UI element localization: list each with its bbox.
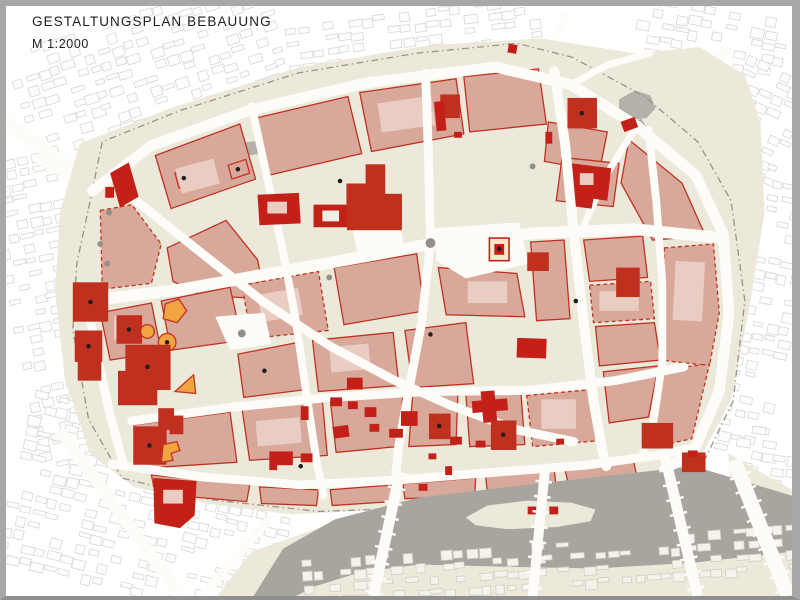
fabric-building (12, 183, 24, 192)
fabric-building (57, 568, 69, 576)
fabric-building (91, 65, 102, 73)
fabric-building (275, 58, 285, 66)
fabric-building (46, 133, 59, 143)
fabric-building (765, 272, 776, 280)
fabric-building (85, 54, 96, 65)
fabric-building (777, 221, 788, 228)
fabric-building (89, 535, 102, 546)
island (549, 507, 558, 515)
fabric-building (766, 107, 781, 119)
fabric-building (224, 63, 239, 74)
fabric-building (532, 31, 542, 38)
fabric-building (97, 90, 107, 99)
fabric-building (30, 216, 44, 228)
fabric-building (736, 567, 746, 573)
fabric-building (26, 257, 36, 263)
fabric-building (399, 12, 410, 22)
fabric-building (49, 538, 62, 550)
courtyard (673, 261, 706, 321)
fabric-building (23, 440, 38, 452)
fabric-building (430, 589, 443, 594)
fabric-building (47, 53, 61, 65)
fabric-building (36, 496, 48, 504)
fabric-building (718, 431, 732, 443)
fabric-building (40, 469, 51, 477)
fabric-building (101, 103, 111, 110)
fabric-building (714, 443, 727, 451)
fabric-building (661, 573, 671, 579)
courtyard (468, 281, 507, 303)
fabric-building (749, 347, 759, 354)
fabric-building (210, 528, 221, 538)
fabric-building (558, 567, 569, 572)
fabric-building (45, 292, 56, 299)
fabric-building (80, 574, 91, 586)
fabric-building (464, 14, 478, 24)
fabric-building (175, 77, 190, 90)
fabric-building (6, 159, 16, 169)
small-red-building (348, 401, 358, 409)
fabric-building (789, 563, 792, 569)
fabric-building (749, 541, 760, 549)
fabric-building (426, 20, 439, 27)
fabric-building (33, 348, 44, 357)
fabric-building (781, 312, 792, 324)
fabric-building (81, 520, 94, 531)
fabric-building (13, 193, 27, 200)
small-red-building (688, 450, 698, 457)
fabric-building (779, 72, 791, 83)
fabric-building (182, 532, 197, 544)
fabric-building (608, 551, 619, 558)
fabric-building (71, 85, 85, 94)
fabric-building (767, 206, 777, 212)
marker-dot (262, 369, 267, 374)
fountain-dot (106, 210, 112, 216)
fabric-building (85, 509, 97, 519)
fabric-building (697, 543, 710, 551)
fabric-building (430, 576, 439, 584)
fabric-building (198, 523, 209, 532)
marker-dot (127, 327, 132, 332)
fabric-building (51, 382, 64, 391)
fabric-building (404, 37, 416, 47)
fabric-building (530, 19, 542, 30)
fabric-building (36, 308, 46, 315)
fabric-building (778, 340, 791, 350)
fabric-building (106, 73, 119, 81)
marker-dot (501, 432, 506, 437)
landmark-courtyard (322, 211, 339, 222)
fabric-building (620, 551, 630, 556)
small-red-building (347, 378, 363, 390)
fabric-building (765, 335, 775, 341)
fabric-building (20, 505, 31, 513)
fabric-building (338, 32, 352, 41)
fabric-building (428, 34, 442, 45)
fabric-building (60, 59, 75, 71)
fabric-building (34, 229, 44, 235)
fabric-building (482, 586, 491, 596)
fabric-building (622, 577, 631, 583)
small-red-building (370, 424, 380, 432)
fabric-building (313, 50, 323, 57)
marker-dot (437, 424, 442, 429)
landmark (517, 338, 547, 359)
small-red-building (545, 132, 552, 144)
orange-building (650, 431, 666, 441)
fabric-building (768, 257, 780, 265)
fabric-building (438, 6, 449, 11)
fountain-dot (238, 330, 246, 338)
fabric-building (20, 451, 32, 460)
fabric-building (74, 492, 86, 502)
fabric-building (88, 549, 99, 557)
scale-label: M 1:2000 (32, 37, 272, 51)
fabric-building (711, 32, 722, 41)
fabric-building (101, 61, 111, 71)
church-tower (105, 187, 114, 198)
fabric-building (778, 326, 789, 335)
fabric-building (775, 43, 786, 49)
fabric-building (133, 573, 144, 580)
fabric-building (24, 244, 35, 254)
fabric-building (20, 232, 34, 239)
fabric-building (487, 6, 502, 10)
fabric-building (772, 525, 782, 535)
fabric-building (729, 12, 741, 21)
orange-building (445, 99, 455, 113)
fabric-building (762, 147, 774, 156)
fabric-building (449, 6, 460, 15)
fabric-building (784, 300, 792, 307)
fabric-building (415, 23, 427, 32)
plan-map (6, 6, 792, 596)
fabric-building (704, 6, 715, 15)
marker-dot (236, 167, 241, 172)
fabric-building (746, 371, 756, 377)
orange-building (162, 412, 170, 426)
title-block: GESTALTUNGSPLAN BEBAUUNG M 1:2000 (32, 14, 272, 51)
fabric-building (726, 24, 737, 30)
orange-building (141, 325, 155, 339)
fabric-building (115, 490, 125, 497)
fabric-building (508, 585, 517, 590)
fabric-building (197, 70, 209, 82)
marker-dot (182, 176, 187, 181)
fabric-building (19, 284, 30, 291)
fabric-building (24, 115, 34, 124)
fabric-building (45, 281, 55, 291)
fabric-building (39, 321, 52, 333)
fabric-building (493, 558, 502, 564)
fabric-building (647, 574, 661, 580)
fabric-building (127, 93, 138, 103)
fabric-building (701, 20, 712, 29)
fabric-building (406, 577, 418, 583)
fabric-building (23, 362, 32, 370)
fabric-building (417, 36, 427, 42)
fabric-building (29, 562, 44, 573)
fabric-building (59, 503, 70, 512)
fountain-dot (104, 261, 110, 267)
fabric-building (130, 587, 143, 596)
fabric-building (505, 22, 515, 29)
fabric-building (745, 55, 757, 67)
page-title: GESTALTUNGSPLAN BEBAUUNG (32, 14, 272, 29)
fabric-building (489, 12, 503, 20)
fabric-building (353, 43, 364, 52)
fountain-dot (97, 241, 103, 247)
marker-dot (579, 111, 584, 116)
fabric-building (767, 194, 778, 201)
fabric-building (736, 438, 751, 448)
fabric-building (735, 410, 745, 418)
small-red-building (389, 429, 403, 438)
marker-dot (145, 365, 150, 370)
building-block (596, 323, 661, 366)
building-block (259, 487, 318, 506)
orange-building (84, 361, 96, 375)
fabric-building (227, 518, 238, 524)
fabric-building (453, 550, 463, 558)
fabric-building (46, 499, 57, 510)
fabric-building (783, 183, 792, 190)
fabric-building (760, 296, 772, 304)
fabric-building (323, 21, 334, 29)
landmark-courtyard (580, 173, 594, 185)
fabric-building (585, 579, 598, 590)
fabric-building (636, 575, 645, 582)
fabric-building (13, 259, 26, 266)
fountain-dot (326, 274, 332, 280)
fabric-building (772, 57, 783, 67)
fabric-building (9, 299, 21, 306)
fabric-building (776, 82, 791, 93)
fabric-building (372, 14, 384, 21)
fabric-building (33, 548, 44, 557)
fabric-building (782, 196, 792, 203)
landmark-courtyard (267, 202, 287, 214)
fabric-building (390, 39, 402, 48)
orange-building (361, 208, 389, 217)
fabric-building (772, 181, 782, 190)
fabric-building (780, 139, 791, 147)
fabric-building (13, 326, 24, 333)
fabric-building (220, 52, 231, 60)
fabric-building (6, 555, 20, 566)
fabric-building (753, 321, 762, 327)
fabric-building (786, 525, 792, 531)
fabric-building (573, 580, 583, 586)
fabric-building (285, 28, 296, 35)
fabric-building (782, 129, 792, 139)
fabric-building (181, 546, 194, 553)
marker-dot (165, 340, 170, 345)
fabric-building (354, 569, 366, 579)
fabric-building (281, 517, 291, 524)
fabric-building (26, 73, 39, 81)
fabric-building (314, 571, 323, 580)
marker-dot (428, 332, 433, 337)
small-red-building (365, 407, 377, 417)
courtyard (541, 399, 575, 429)
fabric-building (454, 562, 464, 568)
fabric-building (46, 174, 57, 183)
fabric-building (750, 27, 765, 39)
fabric-building (391, 566, 403, 575)
fabric-building (202, 83, 212, 91)
fabric-building (64, 113, 78, 124)
fabric-building (496, 585, 505, 595)
fabric-building (49, 66, 59, 76)
fabric-building (596, 565, 608, 570)
fabric-building (32, 97, 47, 109)
fabric-building (120, 582, 132, 589)
fabric-building (773, 352, 787, 361)
marker-dot (497, 247, 502, 252)
fabric-building (751, 451, 762, 461)
fabric-building (6, 275, 14, 284)
fabric-building (21, 102, 30, 109)
fabric-building (28, 521, 40, 528)
fabric-building (66, 477, 80, 489)
fabric-building (302, 560, 312, 567)
fabric-building (6, 540, 9, 548)
fabric-building (52, 475, 67, 487)
marker-dot (88, 300, 93, 305)
fabric-building (13, 529, 24, 540)
fabric-building (129, 492, 141, 502)
marker-dot (147, 443, 152, 448)
fabric-building (23, 179, 36, 188)
fabric-building (150, 85, 163, 97)
fabric-building (507, 572, 519, 579)
fabric-building (28, 323, 41, 330)
fabric-building (272, 47, 282, 54)
fabric-building (224, 529, 234, 536)
fabric-building (326, 34, 338, 40)
fabric-building (12, 79, 23, 89)
fabric-building (339, 45, 349, 52)
fabric-building (691, 6, 704, 12)
fabric-building (21, 491, 33, 501)
orange-building (371, 169, 381, 200)
fabric-building (191, 88, 202, 99)
fabric-building (351, 33, 364, 42)
fabric-building (6, 170, 17, 180)
fabric-building (17, 156, 28, 165)
fabric-building (299, 27, 310, 34)
fabric-building (771, 468, 784, 477)
fabric-building (34, 361, 46, 372)
fabric-building (770, 95, 783, 107)
fabric-building (598, 577, 609, 582)
fabric-building (388, 25, 401, 33)
fabric-building (354, 581, 368, 590)
fabric-building (711, 569, 722, 577)
fabric-building (102, 539, 114, 548)
fabric-building (465, 27, 475, 33)
fabric-building (33, 509, 47, 516)
fabric-building (673, 572, 685, 582)
small-red-building (428, 453, 436, 459)
fabric-building (115, 57, 127, 67)
fabric-building (92, 577, 102, 585)
fabric-building (187, 573, 196, 579)
fabric-building (278, 529, 290, 537)
fabric-building (479, 548, 491, 559)
fabric-building (776, 275, 786, 286)
fabric-building (393, 590, 405, 596)
fabric-building (362, 18, 373, 28)
landmark (332, 425, 349, 439)
fabric-building (29, 269, 42, 276)
fabric-building (746, 360, 758, 371)
fabric-building (773, 455, 786, 462)
fabric-building (38, 109, 52, 119)
fabric-building (141, 496, 155, 506)
fabric-building (748, 412, 759, 420)
plan-sheet: GESTALTUNGSPLAN BEBAUUNG M 1:2000 (0, 0, 800, 600)
fabric-building (467, 549, 479, 559)
fabric-building (739, 396, 752, 405)
fabric-building (416, 563, 426, 573)
fabric-building (55, 407, 68, 419)
fabric-building (30, 334, 42, 343)
orange-building (533, 258, 544, 266)
fabric-building (762, 349, 775, 356)
marker-dot (86, 344, 91, 349)
fabric-building (653, 9, 664, 18)
fabric-building (111, 555, 122, 564)
fabric-building (596, 552, 606, 558)
fabric-building (17, 219, 29, 229)
fabric-building (60, 555, 73, 565)
fabric-building (6, 250, 11, 262)
fabric-building (9, 234, 19, 243)
fabric-building (752, 426, 766, 435)
fabric-building (708, 530, 721, 540)
fabric-building (790, 275, 792, 285)
fabric-building (80, 121, 94, 133)
fabric-building (20, 557, 32, 566)
fabric-building (671, 548, 680, 557)
fabric-building (762, 43, 775, 52)
fabric-building (480, 573, 493, 581)
marker-dot (574, 299, 579, 304)
fabric-building (6, 197, 13, 204)
fabric-building (28, 85, 40, 97)
fabric-building (45, 94, 60, 106)
marker-dot (298, 464, 303, 469)
fabric-building (30, 402, 41, 413)
fabric-building (76, 110, 86, 118)
fabric-building (165, 553, 176, 562)
fabric-building (204, 6, 220, 12)
roundabout-dot (426, 238, 436, 248)
fabric-building (302, 571, 312, 581)
fabric-building (6, 186, 11, 198)
fabric-building (118, 69, 133, 80)
fabric-building (765, 17, 777, 28)
fabric-building (72, 559, 86, 571)
fabric-building (440, 19, 451, 27)
courtyard (256, 417, 302, 446)
fabric-building (514, 7, 525, 16)
fabric-building (40, 202, 53, 212)
fabric-building (787, 456, 792, 467)
